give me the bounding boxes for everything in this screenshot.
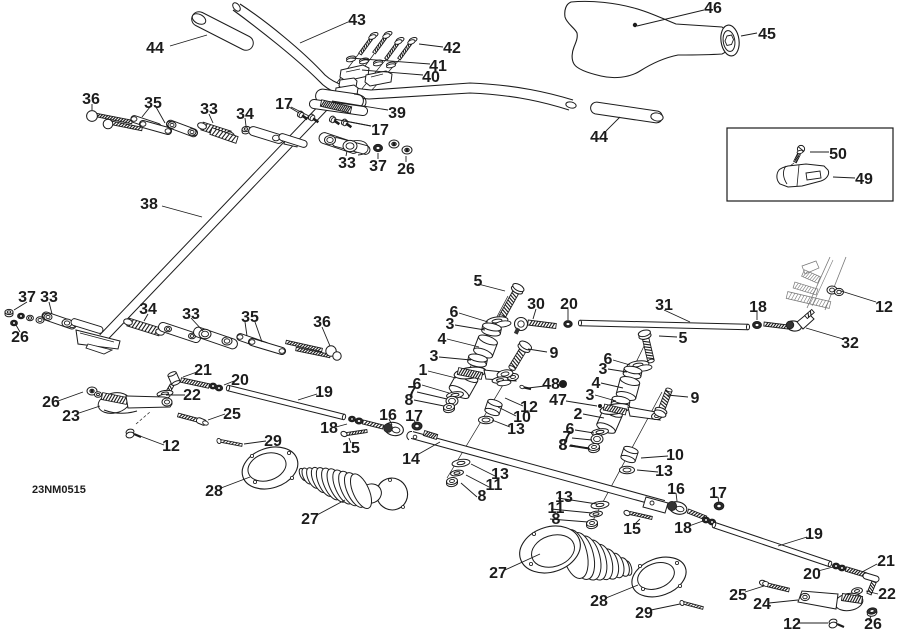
svg-text:21: 21 <box>194 362 212 379</box>
svg-text:46: 46 <box>704 0 722 17</box>
svg-text:26: 26 <box>864 616 882 631</box>
svg-text:33: 33 <box>338 155 356 172</box>
svg-text:3: 3 <box>586 387 595 404</box>
svg-text:15: 15 <box>342 440 360 457</box>
svg-text:18: 18 <box>320 420 338 437</box>
svg-text:35: 35 <box>144 95 162 112</box>
svg-text:35: 35 <box>241 309 259 326</box>
svg-text:34: 34 <box>139 301 157 318</box>
svg-text:45: 45 <box>758 26 776 43</box>
svg-text:44: 44 <box>590 129 608 146</box>
svg-text:9: 9 <box>550 345 559 362</box>
svg-text:33: 33 <box>200 101 218 118</box>
svg-text:9: 9 <box>691 390 700 407</box>
svg-text:40: 40 <box>422 69 440 86</box>
svg-text:8: 8 <box>552 511 561 528</box>
svg-text:3: 3 <box>430 348 439 365</box>
svg-text:29: 29 <box>264 433 282 450</box>
svg-text:13: 13 <box>507 421 525 438</box>
svg-text:11: 11 <box>486 477 503 494</box>
svg-text:8: 8 <box>478 488 487 505</box>
svg-text:28: 28 <box>205 483 223 500</box>
svg-text:43: 43 <box>348 12 366 29</box>
svg-text:33: 33 <box>40 289 58 306</box>
svg-text:31: 31 <box>655 297 673 314</box>
svg-text:16: 16 <box>667 481 685 498</box>
svg-text:25: 25 <box>223 406 241 423</box>
svg-text:32: 32 <box>841 335 859 352</box>
svg-text:19: 19 <box>805 526 823 543</box>
svg-text:12: 12 <box>783 616 801 631</box>
svg-text:20: 20 <box>231 372 249 389</box>
svg-text:25: 25 <box>729 587 747 604</box>
svg-text:17: 17 <box>709 485 727 502</box>
svg-text:17: 17 <box>371 122 389 139</box>
svg-text:38: 38 <box>140 196 158 213</box>
svg-text:39: 39 <box>388 105 406 122</box>
svg-text:28: 28 <box>590 593 608 610</box>
svg-text:36: 36 <box>82 91 100 108</box>
svg-text:36: 36 <box>313 314 331 331</box>
svg-text:27: 27 <box>489 565 507 582</box>
svg-text:44: 44 <box>146 40 164 57</box>
svg-text:50: 50 <box>829 146 847 163</box>
svg-text:8: 8 <box>559 437 568 454</box>
svg-text:30: 30 <box>527 296 545 313</box>
svg-text:15: 15 <box>623 521 641 538</box>
svg-text:37: 37 <box>18 289 36 306</box>
svg-text:48: 48 <box>542 376 560 393</box>
svg-text:20: 20 <box>803 566 821 583</box>
svg-text:10: 10 <box>666 447 684 464</box>
svg-text:49: 49 <box>855 171 873 188</box>
svg-text:26: 26 <box>397 161 415 178</box>
svg-text:23NM0515: 23NM0515 <box>32 484 86 496</box>
svg-text:23: 23 <box>62 408 80 425</box>
svg-text:29: 29 <box>635 605 653 622</box>
svg-text:16: 16 <box>379 407 397 424</box>
svg-text:22: 22 <box>183 387 201 404</box>
svg-text:4: 4 <box>438 331 447 348</box>
svg-text:17: 17 <box>275 96 293 113</box>
svg-text:19: 19 <box>315 384 333 401</box>
svg-text:27: 27 <box>301 511 319 528</box>
svg-text:12: 12 <box>875 299 893 316</box>
svg-text:37: 37 <box>369 158 387 175</box>
svg-text:24: 24 <box>753 596 771 613</box>
svg-text:18: 18 <box>674 520 692 537</box>
svg-text:13: 13 <box>655 463 673 480</box>
svg-text:26: 26 <box>11 329 29 346</box>
svg-text:12: 12 <box>162 438 180 455</box>
svg-text:47: 47 <box>549 392 567 409</box>
svg-text:34: 34 <box>236 106 254 123</box>
svg-text:5: 5 <box>474 273 483 290</box>
svg-text:18: 18 <box>749 299 767 316</box>
svg-text:5: 5 <box>679 330 688 347</box>
svg-text:20: 20 <box>560 296 578 313</box>
svg-text:3: 3 <box>446 316 455 333</box>
svg-text:17: 17 <box>405 408 423 425</box>
svg-text:33: 33 <box>182 306 200 323</box>
svg-text:22: 22 <box>878 586 896 603</box>
svg-text:21: 21 <box>877 553 895 570</box>
svg-text:42: 42 <box>443 40 461 57</box>
svg-text:2: 2 <box>574 406 583 423</box>
svg-text:8: 8 <box>405 392 414 409</box>
svg-text:14: 14 <box>402 451 420 468</box>
svg-text:26: 26 <box>42 394 60 411</box>
